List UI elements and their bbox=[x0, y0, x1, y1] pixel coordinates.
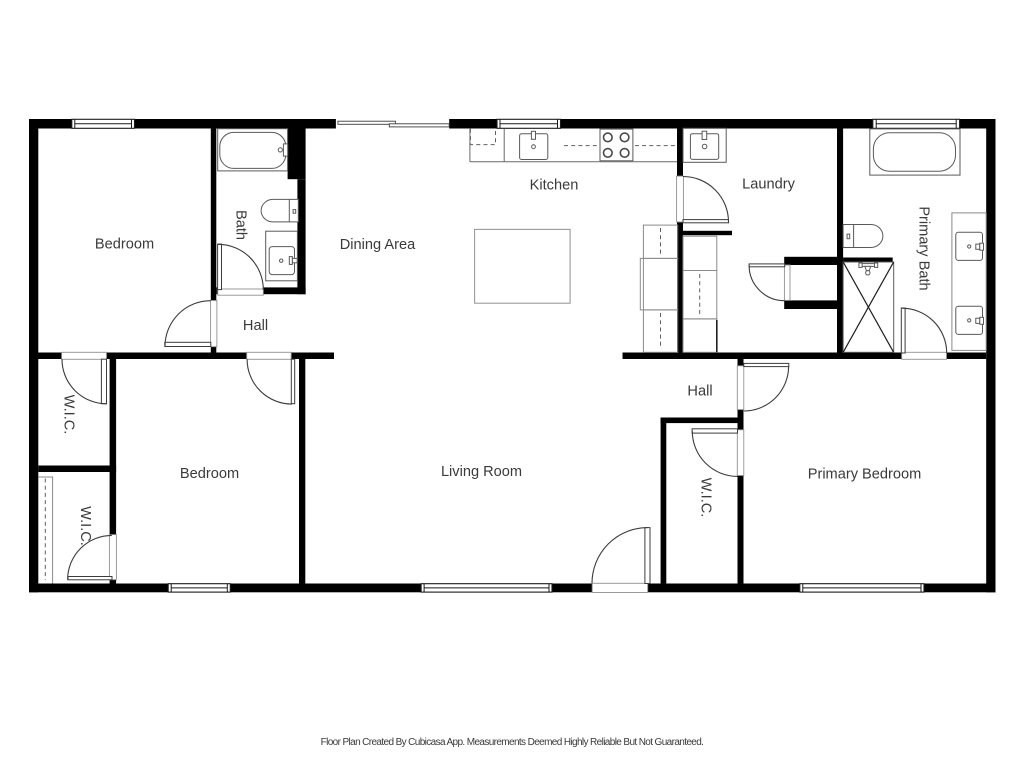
svg-text:Hall: Hall bbox=[687, 384, 712, 400]
svg-text:Primary Bedroom: Primary Bedroom bbox=[808, 467, 922, 483]
svg-text:Kitchen: Kitchen bbox=[530, 178, 579, 194]
svg-text:Bath: Bath bbox=[233, 210, 249, 240]
svg-text:Bedroom: Bedroom bbox=[95, 237, 154, 253]
svg-text:Dining Area: Dining Area bbox=[340, 237, 416, 253]
svg-text:Living Room: Living Room bbox=[441, 464, 522, 480]
svg-text:Bedroom: Bedroom bbox=[180, 466, 239, 482]
svg-text:Primary Bath: Primary Bath bbox=[916, 206, 932, 290]
svg-text:Floor Plan Created By Cubicasa: Floor Plan Created By Cubicasa App. Meas… bbox=[321, 737, 704, 748]
svg-text:W.I.C.: W.I.C. bbox=[698, 478, 714, 518]
svg-text:Hall: Hall bbox=[243, 318, 268, 334]
svg-text:Laundry: Laundry bbox=[742, 177, 795, 193]
svg-text:W.I.C.: W.I.C. bbox=[77, 506, 93, 546]
svg-text:W.I.C.: W.I.C. bbox=[61, 395, 77, 435]
